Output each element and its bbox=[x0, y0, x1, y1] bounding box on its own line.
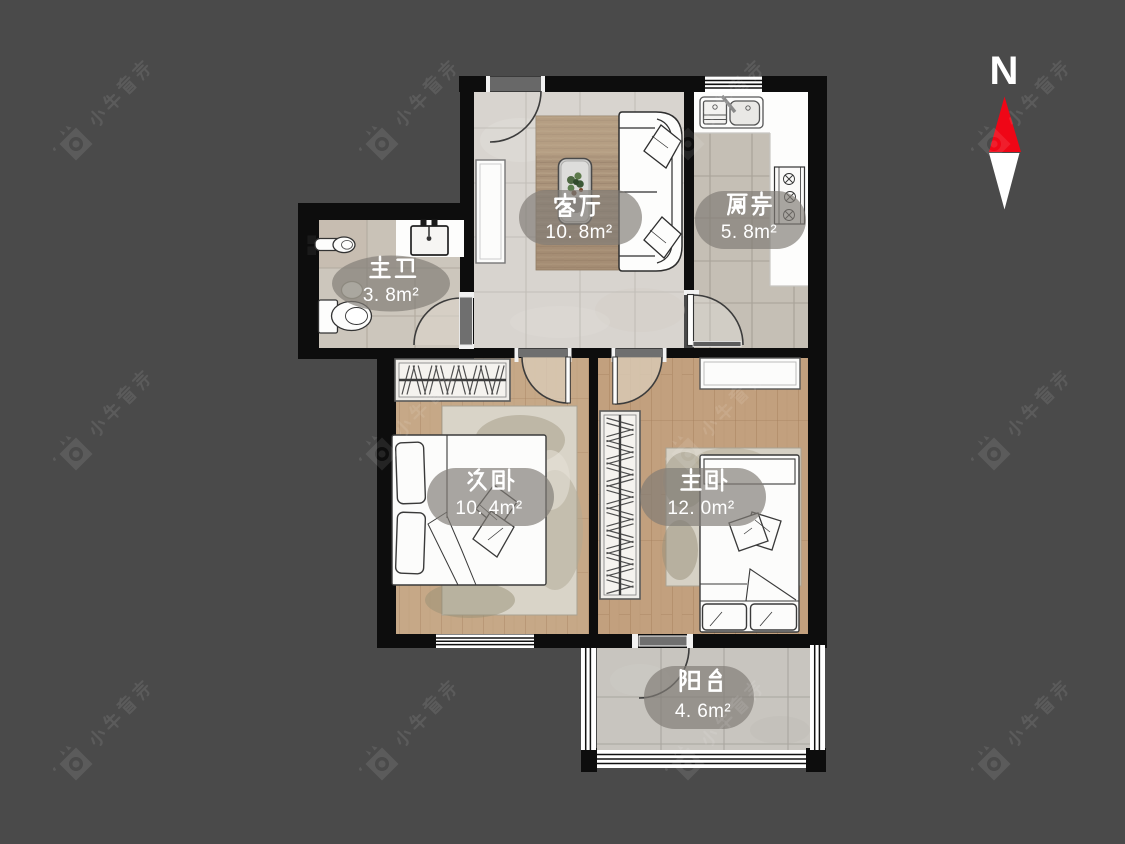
svg-text:10. 8m²: 10. 8m² bbox=[545, 222, 612, 243]
svg-text:5. 8m²: 5. 8m² bbox=[721, 222, 777, 243]
svg-text:3. 8m²: 3. 8m² bbox=[363, 285, 419, 306]
svg-text:N: N bbox=[990, 49, 1019, 93]
svg-text:12. 0m²: 12. 0m² bbox=[667, 498, 734, 519]
svg-text:10. 4m²: 10. 4m² bbox=[455, 498, 522, 519]
